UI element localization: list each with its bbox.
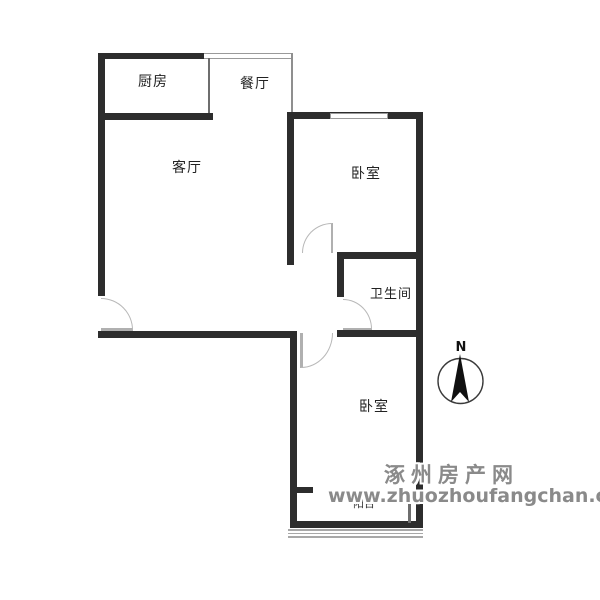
window-balcony-line1 [288,529,423,531]
partition-kitchen-dining [208,58,210,113]
compass-icon [435,350,487,410]
label-dining: 餐厅 [240,73,270,93]
wall-bathroom-top [337,252,423,259]
label-bedroom-top: 卧室 [351,163,381,183]
wall-kitchen-bottom [98,113,213,120]
wall-left [98,53,105,296]
wall-living-bottom [98,331,295,338]
wall-top-kitchen [98,53,204,59]
label-bedroom-bottom: 卧室 [359,396,389,416]
label-living: 客厅 [172,157,202,177]
door-arc-bedroom-top [302,223,332,253]
wall-living-bedroom [287,112,294,265]
wall-bathroom-left [337,252,344,297]
wall-bedroom-bottom-south [290,521,423,528]
door-arc-bathroom [343,299,372,329]
window-balcony-line2 [288,533,423,535]
floorplan-canvas: 厨房 餐厅 客厅 卧室 卫生间 卧室 阳台 N 涿州房产网 www.zhuozh… [0,0,600,600]
wall-balcony-stub [293,487,313,493]
door-arc-bedroom-bottom [301,333,333,368]
wall-bathroom-bottom [337,330,423,337]
window-dining-top [204,53,293,59]
label-kitchen: 厨房 [138,71,168,91]
wall-bedroom-bottom-left [290,331,297,525]
label-bathroom: 卫生间 [370,283,412,302]
window-bedroom-top [330,113,388,119]
door-arc-entry [101,298,133,330]
watermark-site-url: www.zhuozhoufangchan.com [328,485,600,507]
window-balcony-line3 [288,536,423,538]
wall-dining-right-thin [291,53,293,112]
